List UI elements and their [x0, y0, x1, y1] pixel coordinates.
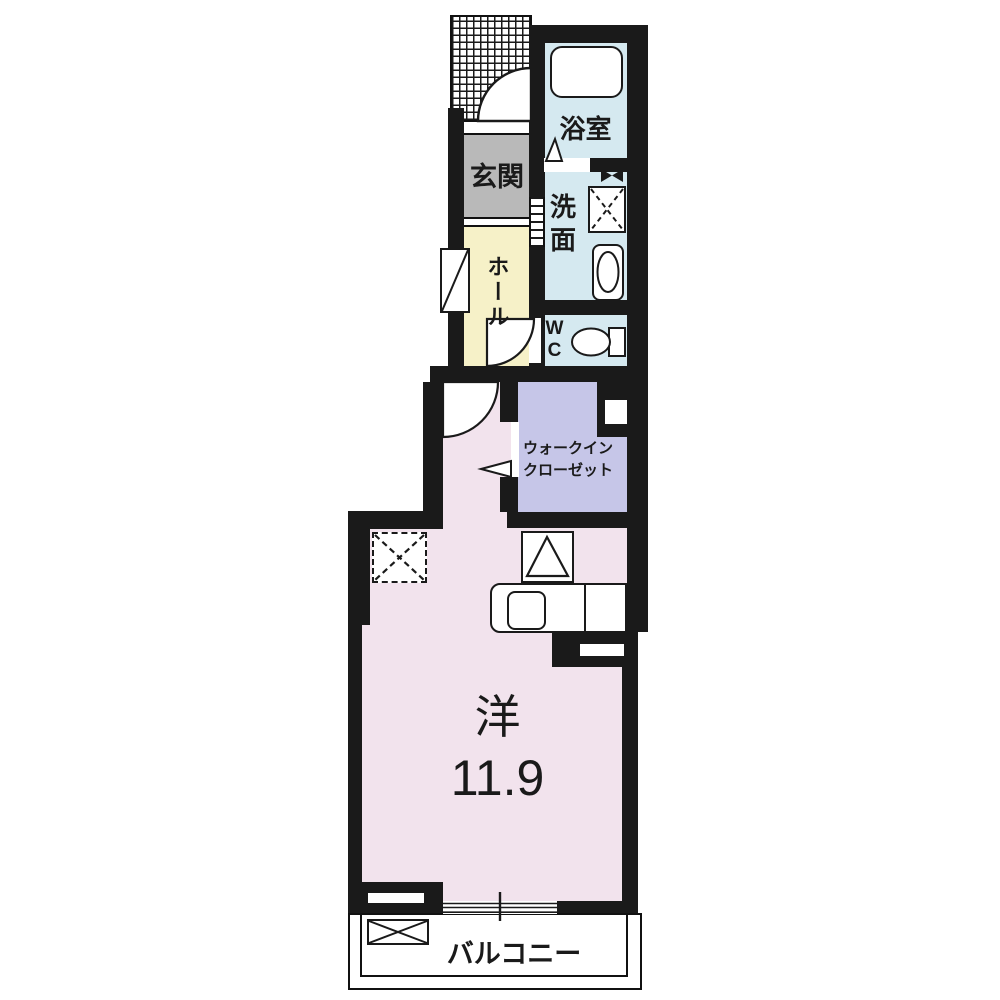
toilet-tank: [609, 328, 625, 356]
hall-label: ホール: [483, 237, 509, 347]
refrigerator-triangle: [527, 537, 568, 576]
toilet-bowl: [572, 329, 610, 356]
washer-x: [591, 189, 623, 230]
closet-label-line1: ウォークイン: [512, 440, 624, 458]
fixtures-overlay: [0, 0, 1000, 1000]
main-room-size-label: 11.9: [410, 748, 585, 808]
wc-label: WC: [543, 318, 566, 363]
bath-label: 浴室: [544, 114, 627, 145]
corridor-door-arc: [443, 382, 498, 437]
vent-icon: [601, 169, 623, 182]
genkan-label: 玄関: [464, 161, 530, 193]
storage-diagonal: [442, 250, 468, 311]
washroom-label: 洗面: [548, 191, 578, 256]
entrance-door-arc: [478, 68, 531, 121]
balcony-label: バルコニー: [404, 938, 624, 970]
main-room-type-label: 洋: [420, 690, 575, 745]
closet-entry-arrow: [481, 461, 511, 477]
washbasin-bowl: [598, 252, 619, 292]
service-x: [375, 535, 424, 580]
floor-plan: 玄関 浴室 洗面 ホール WC ウォークイン クローゼット 洋 11.9 バルコ…: [0, 0, 1000, 1000]
closet-label-line2: クローゼット: [512, 462, 624, 480]
washer-x: [591, 189, 623, 230]
